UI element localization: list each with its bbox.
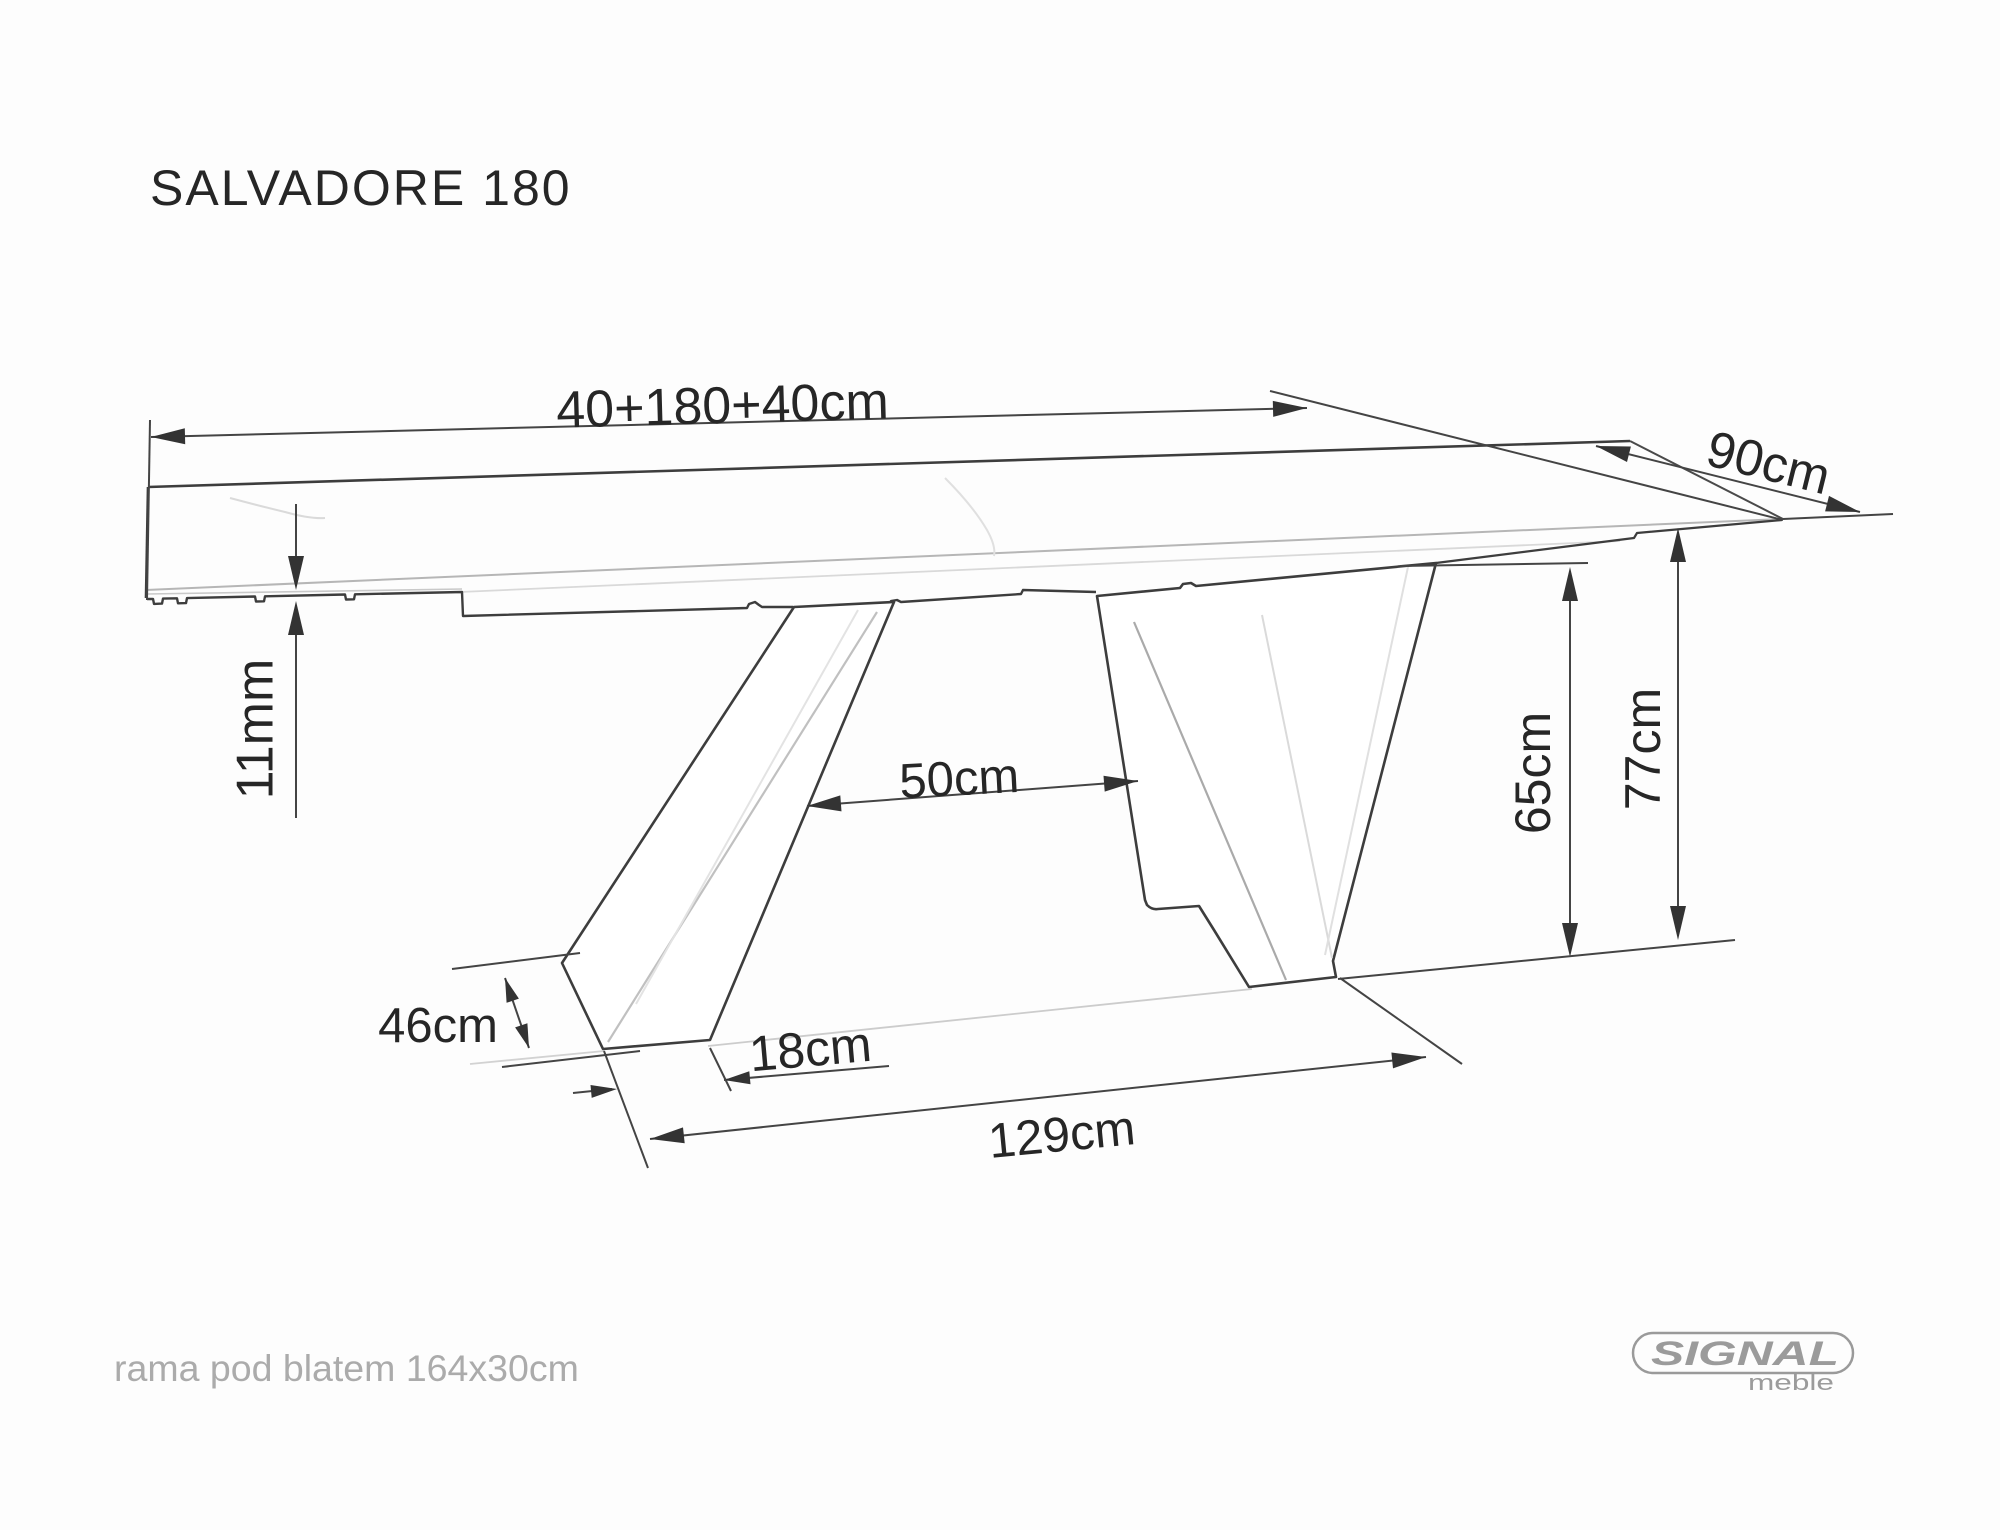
svg-text:40+180+40cm: 40+180+40cm bbox=[555, 372, 889, 439]
svg-text:rama pod blatem 164x30cm: rama pod blatem 164x30cm bbox=[114, 1347, 579, 1389]
svg-text:77cm: 77cm bbox=[1615, 688, 1671, 810]
svg-text:meble: meble bbox=[1748, 1370, 1834, 1395]
svg-text:SIGNAL: SIGNAL bbox=[1651, 1335, 1839, 1373]
svg-text:18cm: 18cm bbox=[747, 1016, 874, 1082]
svg-text:50cm: 50cm bbox=[898, 749, 1020, 809]
svg-text:SALVADORE 180: SALVADORE 180 bbox=[150, 160, 572, 216]
svg-text:46cm: 46cm bbox=[378, 999, 498, 1053]
svg-text:11mm: 11mm bbox=[227, 659, 285, 800]
svg-text:65cm: 65cm bbox=[1505, 712, 1561, 834]
